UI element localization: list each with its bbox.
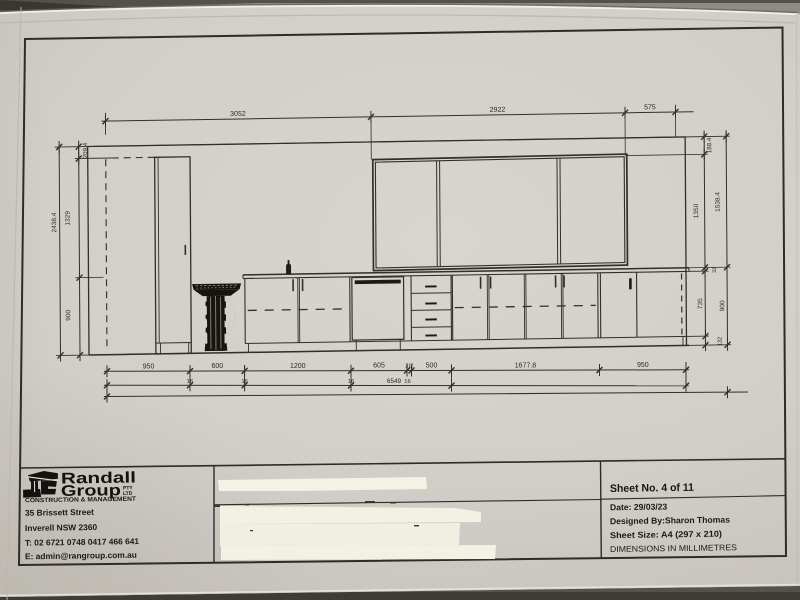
svg-text:900: 900 — [65, 309, 72, 320]
svg-text:950: 950 — [143, 363, 155, 370]
svg-text:1329: 1329 — [65, 211, 72, 226]
svg-text:35 Brissett Street: 35 Brissett Street — [25, 507, 94, 518]
svg-text:Inverell NSW 2360: Inverell NSW 2360 — [25, 522, 98, 533]
svg-text:500: 500 — [426, 363, 438, 370]
svg-text:209.4: 209.4 — [82, 142, 89, 158]
svg-text:1538.4: 1538.4 — [715, 192, 722, 212]
svg-text:Date: 29/03/23: Date: 29/03/23 — [610, 501, 668, 512]
svg-text:Sheet No. 4 of 11: Sheet No. 4 of 11 — [610, 482, 694, 495]
svg-text:575: 575 — [644, 104, 656, 111]
svg-text:605: 605 — [373, 363, 385, 370]
svg-text:6549: 6549 — [387, 378, 402, 385]
svg-text:3052: 3052 — [230, 111, 246, 118]
svg-text:Sheet Size: A4 (297 x 210): Sheet Size: A4 (297 x 210) — [610, 529, 722, 541]
svg-text:132: 132 — [717, 337, 723, 346]
svg-text:16: 16 — [187, 379, 193, 385]
svg-text:32: 32 — [712, 267, 718, 273]
svg-text:1350: 1350 — [693, 203, 700, 218]
svg-text:16: 16 — [348, 379, 354, 385]
svg-text:2438.4: 2438.4 — [51, 212, 58, 232]
svg-text:Designed By:Sharon Thomas: Designed By:Sharon Thomas — [610, 515, 730, 527]
svg-text:1200: 1200 — [290, 363, 306, 370]
svg-text:188.4: 188.4 — [706, 137, 713, 153]
svg-text:T: 02 6721 0748 0417 466 641: T: 02 6721 0748 0417 466 641 — [25, 536, 140, 548]
svg-text:2I2: 2I2 — [405, 364, 413, 370]
svg-text:E: admin@rangroup.com.au: E: admin@rangroup.com.au — [25, 550, 137, 562]
svg-text:2922: 2922 — [490, 107, 506, 114]
svg-text:Sheet No. 3 of 11: Sheet No. 3 of 11 — [630, 468, 704, 479]
svg-text:600: 600 — [211, 363, 223, 370]
svg-text:DIMENSIONS IN MILLIMETRES: DIMENSIONS IN MILLIMETRES — [610, 542, 738, 554]
svg-text:16: 16 — [404, 379, 410, 385]
svg-text:16: 16 — [241, 379, 247, 385]
svg-text:1677.8: 1677.8 — [515, 362, 537, 369]
svg-text:735: 735 — [697, 298, 704, 309]
svg-text:950: 950 — [637, 362, 649, 369]
svg-text:900: 900 — [719, 300, 726, 311]
